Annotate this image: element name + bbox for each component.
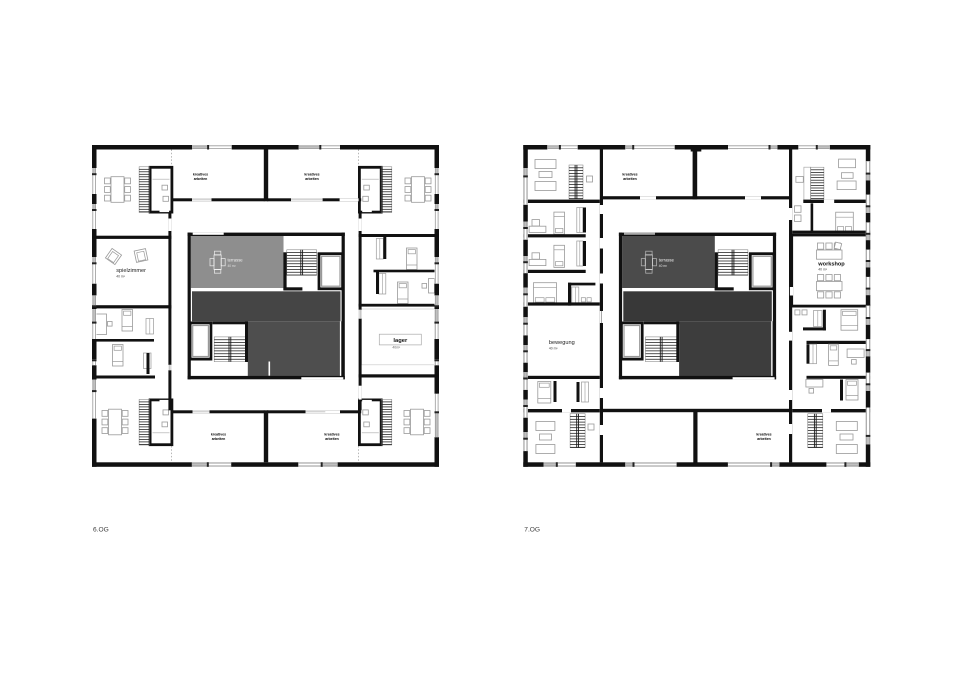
svg-text:40 m²: 40 m² <box>659 264 667 268</box>
svg-text:bewegung: bewegung <box>549 340 575 346</box>
svg-text:workshop: workshop <box>817 261 845 267</box>
svg-text:arbeiten: arbeiten <box>305 177 319 181</box>
svg-text:spielzimmer: spielzimmer <box>116 268 146 274</box>
svg-text:40 m²: 40 m² <box>228 264 236 268</box>
svg-text:arbeiten: arbeiten <box>194 177 208 181</box>
svg-text:arbeiten: arbeiten <box>623 177 637 181</box>
svg-text:40 m²: 40 m² <box>549 346 559 350</box>
svg-text:arbeiten: arbeiten <box>325 437 339 441</box>
svg-text:terrasse: terrasse <box>228 258 244 263</box>
svg-text:lager: lager <box>393 338 408 344</box>
svg-text:terrasse: terrasse <box>659 258 675 263</box>
svg-text:40 m²: 40 m² <box>818 268 828 272</box>
svg-text:arbeiten: arbeiten <box>757 437 771 441</box>
svg-text:40m²: 40m² <box>392 345 401 349</box>
svg-text:arbeiten: arbeiten <box>212 437 226 441</box>
svg-text:6.OG: 6.OG <box>93 527 109 534</box>
svg-text:40 m²: 40 m² <box>116 274 126 278</box>
svg-text:7.OG: 7.OG <box>524 527 540 534</box>
